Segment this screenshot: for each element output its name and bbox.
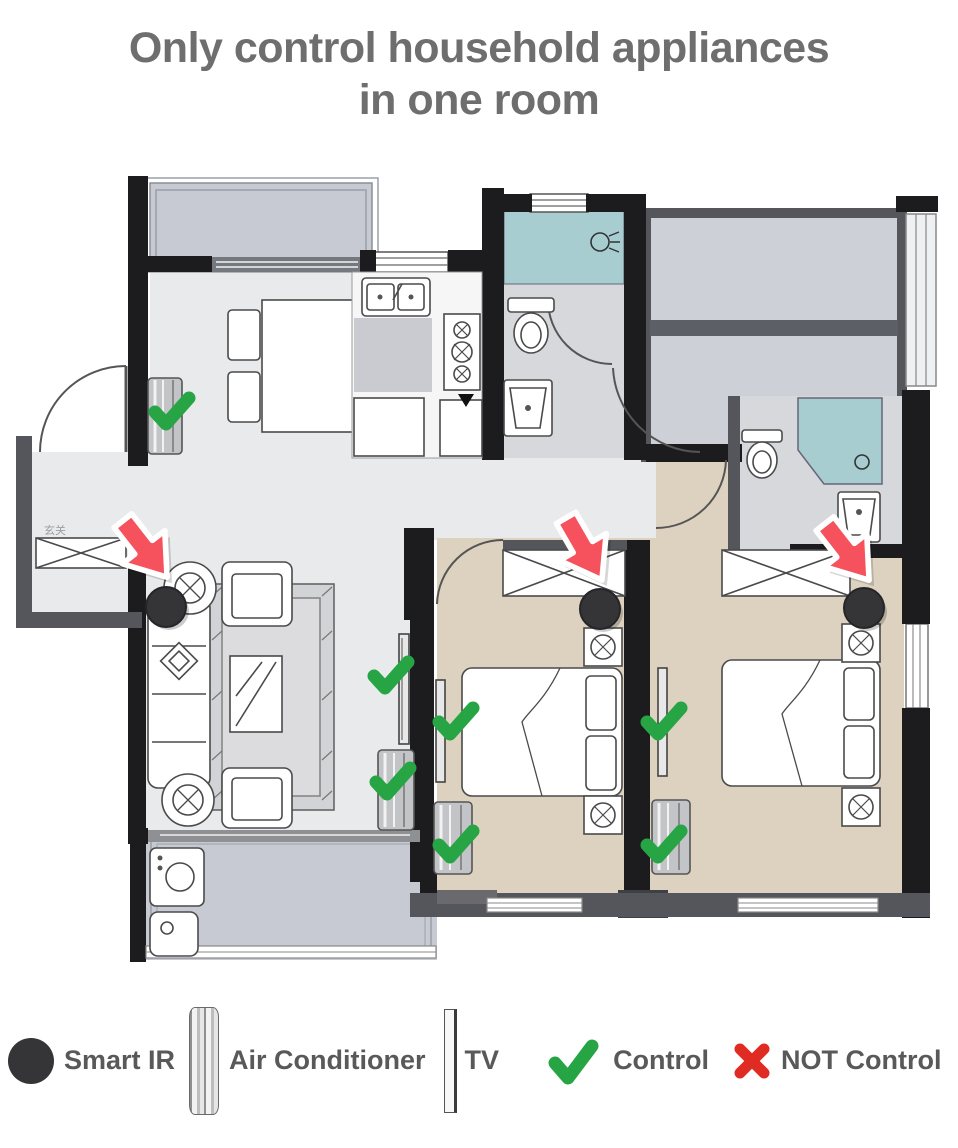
legend-label-smart-ir: Smart IR (64, 1045, 175, 1076)
armchair (222, 562, 292, 626)
smart-ir-dot (580, 589, 620, 629)
page-title-line1: Only control household appliances (0, 22, 958, 74)
dining-chair (228, 310, 260, 360)
room-balcony-top (150, 183, 372, 267)
legend-label-not-control: NOT Control (781, 1045, 941, 1076)
legend-label-air-conditioner: Air Conditioner (229, 1045, 426, 1076)
round-chair (162, 774, 214, 826)
nightstand (584, 796, 622, 834)
kitchen-stove (444, 314, 480, 390)
washing-machine (150, 848, 204, 906)
right-bedroom-bed (722, 660, 880, 786)
middle-bedroom-bed (462, 668, 622, 796)
kitchen-sink (362, 278, 430, 316)
legend-label-control: Control (613, 1045, 709, 1076)
armchair (222, 768, 292, 828)
coffee-table (230, 656, 282, 732)
cross-icon (731, 1040, 773, 1082)
page-title-line2: in one room (0, 74, 958, 126)
legend-label-tv: TV (465, 1045, 500, 1076)
front-door (40, 366, 126, 452)
floor-plan: 玄关 (0, 0, 958, 1148)
kitchen-cabinet (354, 398, 424, 456)
smart-ir-dot (844, 588, 884, 628)
dining-table (262, 300, 356, 432)
nightstand (584, 628, 622, 666)
study-divider (650, 320, 898, 336)
shoe-cabinet (36, 538, 126, 568)
nightstand (842, 788, 880, 826)
tv-icon (444, 1009, 457, 1113)
living-room-tv (399, 634, 409, 744)
smart-ir-icon (8, 1038, 54, 1084)
entrance-label: 玄关 (44, 523, 66, 537)
shower-1 (504, 210, 624, 284)
check-icon (545, 1033, 601, 1089)
dining-chair (228, 372, 260, 422)
legend: Smart IR Air Conditioner TV Control NOT … (0, 998, 958, 1123)
kitchen-prep-area (354, 318, 432, 392)
smart-ir-dot (146, 587, 186, 627)
balcony-sink (150, 912, 198, 956)
page-title: Only control household appliances in one… (0, 22, 958, 127)
air-conditioner-icon (189, 1007, 219, 1115)
kitchen-cabinet (440, 400, 482, 456)
bathroom-1-sink (504, 380, 552, 436)
